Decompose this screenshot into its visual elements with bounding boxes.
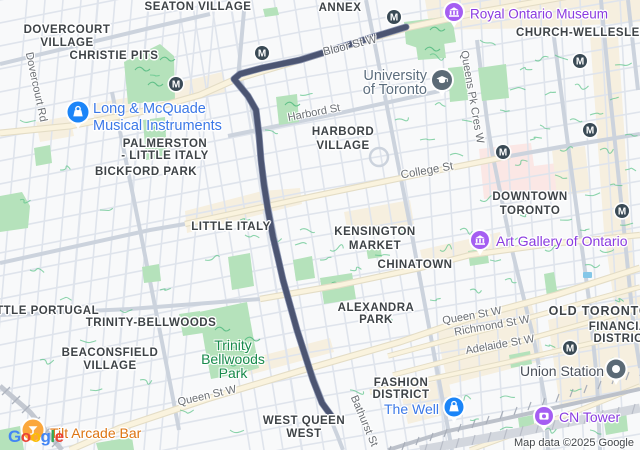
svg-text:M: M bbox=[258, 48, 266, 59]
svg-text:M: M bbox=[499, 147, 507, 158]
svg-text:M: M bbox=[586, 125, 594, 136]
svg-text:M: M bbox=[172, 79, 180, 90]
svg-text:M: M bbox=[576, 56, 584, 67]
svg-text:M: M bbox=[618, 206, 626, 217]
svg-text:M: M bbox=[566, 343, 574, 354]
svg-text:M: M bbox=[390, 12, 398, 23]
